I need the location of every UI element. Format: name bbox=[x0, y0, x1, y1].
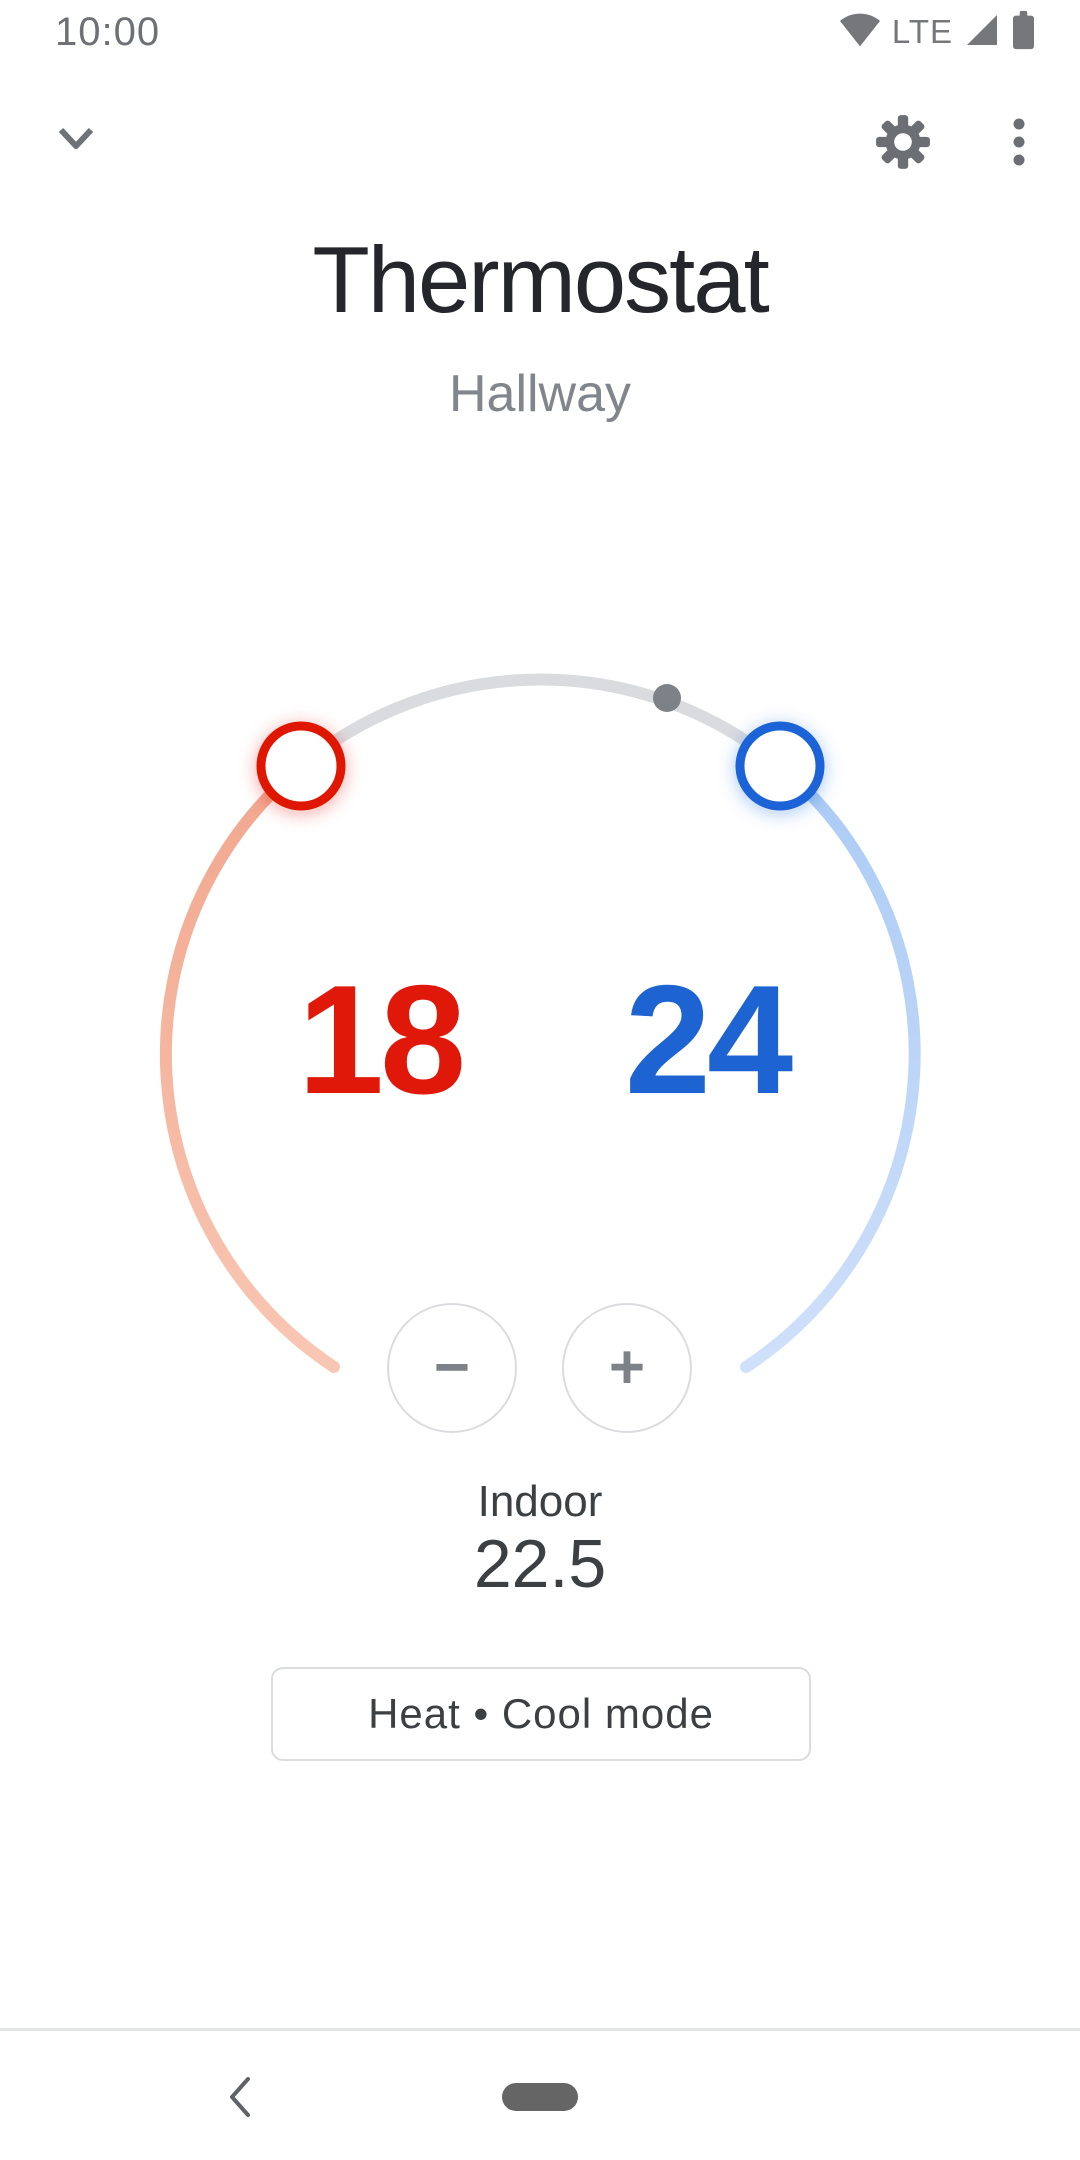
cool-setpoint-handle[interactable] bbox=[740, 726, 820, 806]
neutral-track-arc bbox=[301, 680, 780, 766]
back-button[interactable] bbox=[208, 2066, 272, 2130]
cool-setpoint-value: 24 bbox=[557, 962, 857, 1117]
nav-divider bbox=[0, 2028, 1080, 2031]
collapse-button[interactable] bbox=[38, 108, 114, 172]
status-time: 10:00 bbox=[55, 10, 160, 55]
network-type-label: LTE bbox=[892, 13, 953, 51]
indoor-temperature: 22.5 bbox=[0, 1528, 1080, 1600]
chevron-left-icon bbox=[228, 2075, 252, 2122]
increase-temp-button[interactable]: + bbox=[562, 1303, 692, 1433]
home-indicator-pill[interactable] bbox=[502, 2083, 578, 2111]
indoor-label: Indoor bbox=[0, 1478, 1080, 1526]
cell-signal-icon bbox=[964, 12, 1000, 53]
heat-setpoint-value: 18 bbox=[230, 962, 530, 1117]
mode-button[interactable]: Heat • Cool mode bbox=[271, 1667, 811, 1761]
settings-button[interactable] bbox=[867, 107, 939, 179]
mode-button-label: Heat • Cool mode bbox=[368, 1690, 714, 1738]
overflow-menu-button[interactable] bbox=[983, 107, 1055, 179]
wifi-icon bbox=[839, 11, 881, 54]
gear-icon bbox=[874, 113, 932, 174]
page-title: Thermostat bbox=[0, 230, 1080, 330]
current-temp-marker-dot bbox=[653, 684, 681, 712]
decrease-temp-button[interactable]: − bbox=[387, 1303, 517, 1433]
kebab-menu-icon bbox=[1012, 117, 1026, 170]
chevron-down-icon bbox=[56, 126, 96, 155]
heat-setpoint-handle[interactable] bbox=[261, 726, 341, 806]
plus-icon: + bbox=[609, 1337, 645, 1399]
thermostat-screen: 10:00 LTE bbox=[0, 0, 1080, 2160]
battery-icon bbox=[1011, 9, 1036, 56]
minus-icon: − bbox=[434, 1337, 470, 1399]
room-subtitle: Hallway bbox=[0, 366, 1080, 422]
status-icon-cluster: LTE bbox=[839, 8, 1036, 56]
